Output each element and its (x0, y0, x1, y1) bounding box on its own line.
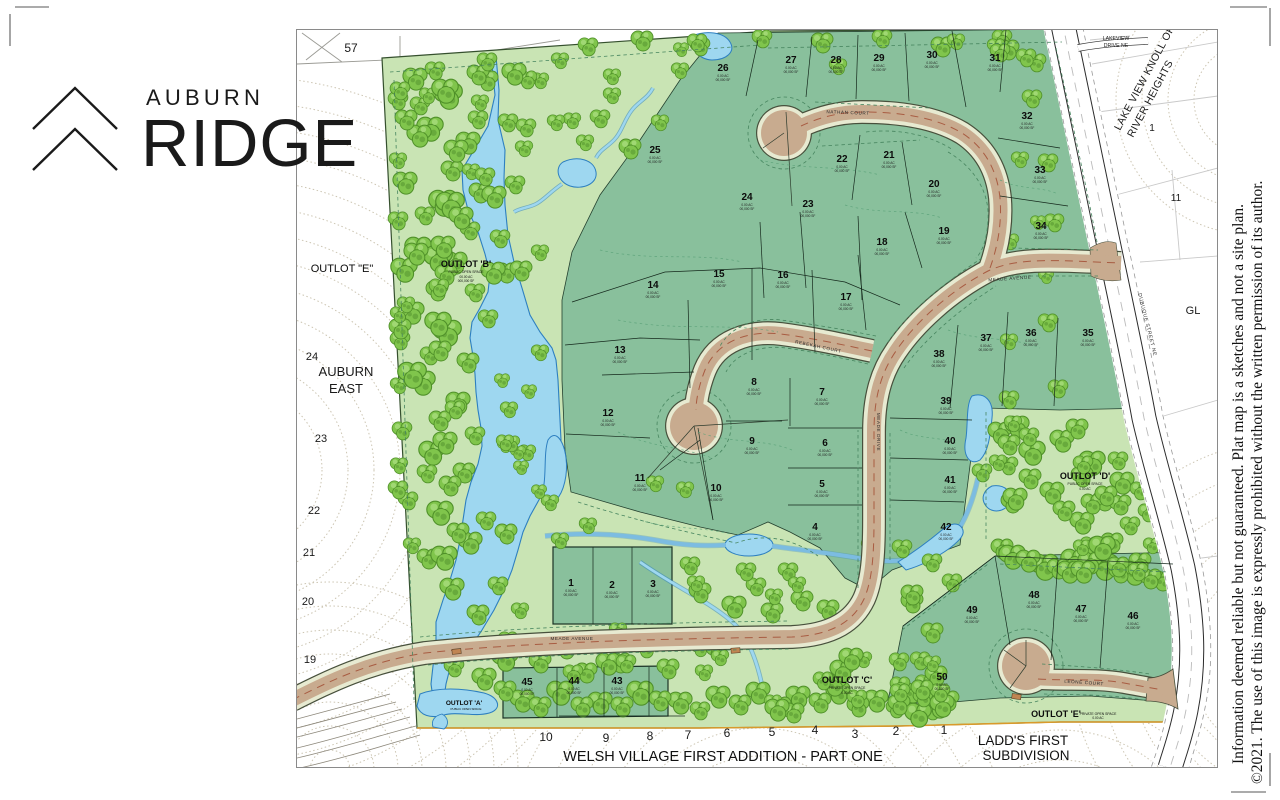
svg-text:00,000 SF: 00,000 SF (716, 78, 731, 82)
svg-text:4: 4 (812, 723, 819, 737)
svg-text:21: 21 (883, 150, 895, 161)
svg-text:00,000 SF: 00,000 SF (808, 537, 823, 541)
svg-text:30: 30 (926, 50, 938, 61)
svg-text:43: 43 (611, 676, 623, 687)
svg-text:9: 9 (749, 436, 755, 447)
svg-text:12: 12 (602, 408, 614, 419)
svg-text:00,000 SF: 00,000 SF (835, 169, 850, 173)
svg-text:33: 33 (1034, 165, 1046, 176)
svg-text:00,000 SF: 00,000 SF (646, 594, 661, 598)
svg-text:21: 21 (303, 547, 315, 559)
svg-text:26: 26 (717, 63, 729, 74)
svg-text:41: 41 (944, 475, 956, 486)
svg-text:3: 3 (650, 579, 656, 590)
svg-text:6: 6 (822, 438, 828, 449)
svg-text:00,000 SF: 00,000 SF (801, 214, 816, 218)
svg-text:Information deemed reliable bu: Information deemed reliable but not guar… (1230, 204, 1247, 764)
svg-text:RIDGE: RIDGE (141, 106, 358, 181)
svg-text:00,000 SF: 00,000 SF (839, 307, 854, 311)
svg-text:10: 10 (710, 483, 722, 494)
svg-text:3: 3 (852, 727, 859, 741)
svg-text:5: 5 (769, 725, 776, 739)
svg-text:34: 34 (1035, 221, 1047, 232)
svg-text:OUTLOT 'D': OUTLOT 'D' (1060, 471, 1110, 481)
svg-text:1: 1 (941, 723, 948, 737)
svg-text:00,000 SF: 00,000 SF (815, 402, 830, 406)
svg-text:00,000 SF: 00,000 SF (943, 490, 958, 494)
svg-text:45: 45 (521, 677, 533, 688)
svg-text:OUTLOT 'E': OUTLOT 'E' (1031, 709, 1081, 719)
svg-text:2: 2 (893, 724, 900, 738)
svg-text:00,000 SF: 00,000 SF (818, 453, 833, 457)
svg-text:00,000 SF: 00,000 SF (709, 498, 724, 502)
svg-text:OUTLOT 'A': OUTLOT 'A' (446, 700, 483, 707)
svg-text:00,000 SF: 00,000 SF (927, 194, 942, 198)
svg-text:1: 1 (1149, 123, 1155, 134)
svg-text:14: 14 (647, 280, 659, 291)
svg-text:00,000 SF: 00,000 SF (829, 70, 844, 74)
svg-text:00,000 SF: 00,000 SF (520, 692, 535, 696)
svg-text:20: 20 (302, 596, 314, 608)
svg-text:00,000 SF: 00,000 SF (939, 537, 954, 541)
svg-text:00,000 SF: 00,000 SF (648, 160, 663, 164)
svg-text:2: 2 (609, 580, 615, 591)
svg-text:00,000 SF: 00,000 SF (605, 595, 620, 599)
svg-text:00,000 SF: 00,000 SF (784, 70, 799, 74)
svg-text:PUBLIC OPEN SPACE: PUBLIC OPEN SPACE (449, 270, 485, 274)
svg-text:31: 31 (989, 53, 1001, 64)
svg-text:00,000 SF: 00,000 SF (925, 65, 940, 69)
svg-text:00,000 SF: 00,000 SF (1020, 126, 1035, 130)
svg-text:00,000 SF: 00,000 SF (939, 411, 954, 415)
svg-text:00,000 SF: 00,000 SF (1081, 343, 1096, 347)
svg-text:00,000 SF: 00,000 SF (567, 691, 582, 695)
svg-text:17: 17 (840, 292, 852, 303)
svg-text:00,000 SF: 00,000 SF (613, 360, 628, 364)
svg-text:42: 42 (940, 522, 952, 533)
svg-text:00,000 SF: 00,000 SF (965, 620, 980, 624)
svg-text:27: 27 (785, 55, 797, 66)
svg-text:00,000 SF: 00,000 SF (740, 207, 755, 211)
svg-text:00,000 SF: 00,000 SF (1027, 605, 1042, 609)
svg-text:44: 44 (568, 676, 580, 687)
svg-text:GL: GL (1186, 305, 1201, 317)
svg-text:00,000 SF: 00,000 SF (564, 593, 579, 597)
svg-text:LADD'S FIRST: LADD'S FIRST (978, 733, 1068, 748)
svg-text:00,000 SF: 00,000 SF (1033, 180, 1048, 184)
svg-text:46: 46 (1127, 611, 1139, 622)
svg-text:38: 38 (933, 349, 945, 360)
svg-text:00,000 SF: 00,000 SF (712, 284, 727, 288)
svg-text:SUBDIVISION: SUBDIVISION (982, 748, 1069, 763)
svg-text:PUBLIC OPEN SPACE: PUBLIC OPEN SPACE (1068, 482, 1104, 486)
svg-text:32: 32 (1021, 111, 1033, 122)
svg-text:00,000 SF: 00,000 SF (776, 285, 791, 289)
svg-text:11: 11 (1171, 193, 1182, 204)
svg-text:0.00 AC: 0.00 AC (1079, 487, 1091, 491)
svg-text:00,000 SF: 00,000 SF (875, 252, 890, 256)
svg-text:39: 39 (940, 396, 952, 407)
svg-text:22: 22 (308, 505, 320, 517)
svg-text:00,000 SF: 00,000 SF (1024, 343, 1039, 347)
svg-text:LAKEVIEW: LAKEVIEW (1103, 36, 1130, 42)
svg-text:00,000 SF: 00,000 SF (601, 423, 616, 427)
svg-text:00,000 SF: 00,000 SF (932, 364, 947, 368)
svg-text:19: 19 (304, 654, 316, 666)
svg-text:48: 48 (1028, 590, 1040, 601)
svg-text:00,000 SF: 00,000 SF (937, 241, 952, 245)
svg-text:1: 1 (568, 578, 574, 589)
svg-text:50: 50 (936, 672, 948, 683)
svg-text:8: 8 (751, 377, 757, 388)
svg-text:WELSH VILLAGE FIRST ADDITION -: WELSH VILLAGE FIRST ADDITION - PART ONE (563, 749, 883, 765)
svg-text:PUBLIC OPEN SPACE: PUBLIC OPEN SPACE (451, 707, 482, 711)
svg-text:00,000 SF: 00,000 SF (979, 348, 994, 352)
svg-text:11: 11 (635, 473, 646, 484)
svg-text:19: 19 (938, 226, 950, 237)
svg-text:00,000 SF: 00,000 SF (943, 451, 958, 455)
svg-text:00,000 SF: 00,000 SF (815, 494, 830, 498)
svg-text:0.00 AC: 0.00 AC (841, 691, 853, 695)
svg-text:36: 36 (1025, 328, 1037, 339)
svg-text:23: 23 (315, 433, 327, 445)
svg-text:00,000 SF: 00,000 SF (882, 165, 897, 169)
svg-text:0.00 AC: 0.00 AC (1092, 716, 1104, 720)
svg-text:4: 4 (812, 522, 818, 533)
svg-text:5: 5 (819, 479, 825, 490)
svg-text:00,000 SF: 00,000 SF (745, 451, 760, 455)
svg-text:37: 37 (980, 333, 992, 344)
svg-text:18: 18 (876, 237, 888, 248)
svg-text:00,000 SF: 00,000 SF (988, 68, 1003, 72)
svg-text:24: 24 (306, 351, 318, 363)
svg-text:AUBURN: AUBURN (319, 364, 374, 379)
svg-text:00,000 SF: 00,000 SF (646, 295, 661, 299)
svg-text:00,000 SF: 00,000 SF (1034, 236, 1049, 240)
svg-text:PRIVATE OPEN SPACE: PRIVATE OPEN SPACE (829, 686, 866, 690)
svg-text:22: 22 (836, 154, 848, 165)
svg-text:7: 7 (685, 728, 692, 742)
svg-text:00,000 SF: 00,000 SF (633, 488, 648, 492)
svg-text:EAST: EAST (329, 381, 363, 396)
svg-text:7: 7 (819, 387, 825, 398)
svg-text:57: 57 (344, 41, 358, 55)
svg-text:MEADE DRIVE: MEADE DRIVE (876, 413, 881, 451)
svg-text:10: 10 (539, 730, 553, 744)
svg-text:8: 8 (647, 729, 654, 743)
svg-text:29: 29 (873, 53, 885, 64)
svg-text:49: 49 (966, 605, 978, 616)
svg-text:47: 47 (1075, 604, 1087, 615)
svg-text:MEADE AVENUE: MEADE AVENUE (550, 636, 593, 641)
svg-text:OUTLOT 'C': OUTLOT 'C' (822, 675, 872, 685)
svg-text:00,000 SF: 00,000 SF (872, 68, 887, 72)
svg-text:35: 35 (1082, 328, 1094, 339)
svg-text:25: 25 (649, 145, 661, 156)
svg-text:000,000 SF: 000,000 SF (458, 279, 475, 283)
svg-text:©2021. The use of this image: ©2021. The use of this image is expressl… (1249, 181, 1266, 784)
svg-text:00,000 SF: 00,000 SF (747, 392, 762, 396)
svg-text:28: 28 (830, 55, 842, 66)
svg-text:15: 15 (713, 269, 725, 280)
svg-text:OUTLOT 'B': OUTLOT 'B' (441, 259, 491, 269)
svg-text:00,000 SF: 00,000 SF (1126, 626, 1141, 630)
svg-text:00,000 SF: 00,000 SF (935, 687, 950, 691)
svg-text:00,000 SF: 00,000 SF (1074, 619, 1089, 623)
svg-text:DRIVE NE: DRIVE NE (1104, 43, 1129, 49)
svg-text:13: 13 (614, 345, 626, 356)
svg-text:16: 16 (777, 270, 789, 281)
svg-text:00,000 SF: 00,000 SF (610, 691, 625, 695)
svg-text:40: 40 (944, 436, 956, 447)
svg-text:23: 23 (802, 199, 814, 210)
svg-text:OUTLOT "E": OUTLOT "E" (311, 263, 374, 275)
svg-text:24: 24 (741, 192, 753, 203)
svg-text:9: 9 (603, 731, 610, 745)
svg-text:20: 20 (928, 179, 940, 190)
svg-text:6: 6 (724, 726, 731, 740)
